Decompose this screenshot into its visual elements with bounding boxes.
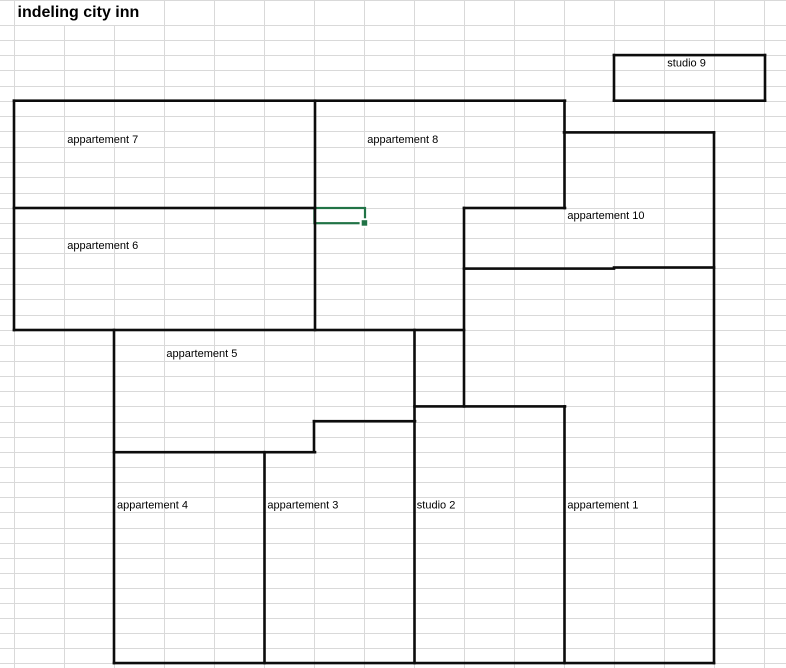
svg-text:appartement 8: appartement 8 bbox=[367, 134, 438, 146]
svg-text:appartement 10: appartement 10 bbox=[567, 210, 644, 222]
svg-text:studio 9: studio 9 bbox=[667, 58, 706, 70]
svg-text:studio 2: studio 2 bbox=[417, 500, 456, 512]
svg-text:appartement 1: appartement 1 bbox=[567, 500, 638, 512]
svg-text:appartement 5: appartement 5 bbox=[166, 348, 237, 360]
svg-text:appartement 6: appartement 6 bbox=[67, 240, 138, 252]
svg-text:appartement 7: appartement 7 bbox=[67, 134, 138, 146]
svg-text:appartement 3: appartement 3 bbox=[267, 500, 338, 512]
svg-text:appartement 4: appartement 4 bbox=[117, 500, 188, 512]
svg-text:indeling city inn: indeling city inn bbox=[18, 4, 140, 21]
